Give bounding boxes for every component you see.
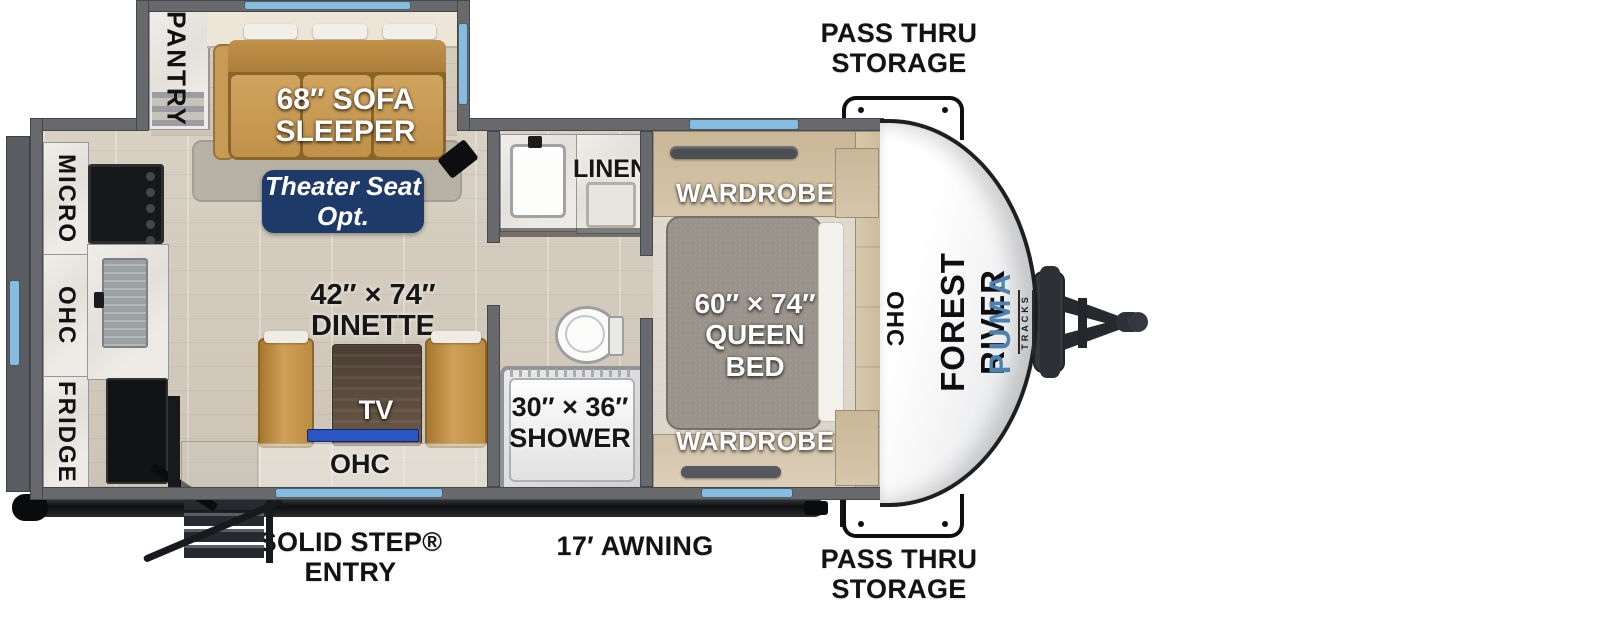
- bathroom-wall: [487, 131, 500, 243]
- bath-faucet: [528, 136, 542, 148]
- pass-thru-storage-label-bottom: PASS THRU STORAGE: [806, 544, 992, 604]
- window-accent: [245, 2, 410, 9]
- bathroom-wall: [487, 305, 500, 487]
- sofa-label-line2: SLEEPER: [258, 116, 433, 148]
- bench-pad: [431, 331, 481, 343]
- bathroom-wall: [640, 131, 653, 256]
- window-accent: [690, 120, 798, 129]
- tv-screen: [307, 429, 419, 442]
- toilet-seat: [565, 315, 605, 353]
- shower-word: SHOWER: [500, 423, 640, 454]
- pass-thru-line1: PASS THRU: [806, 18, 992, 48]
- tracks-wordmark: TRACKS: [1018, 290, 1034, 354]
- bed-word: QUEEN BED: [673, 319, 837, 382]
- screw-dot: [942, 107, 948, 113]
- bedroom-corner-cabinet: [835, 410, 879, 486]
- shower-door-track: [510, 369, 630, 377]
- awning-label: 17′ AWNING: [545, 531, 725, 561]
- bench-pad: [264, 331, 308, 343]
- bedroom-corner-cabinet: [835, 148, 879, 218]
- wardrobe-rod: [681, 466, 781, 478]
- sofa-sleeper-label: 68″ SOFA SLEEPER: [258, 84, 433, 148]
- bed-size: 60″ × 74″: [673, 288, 837, 319]
- step-rail: [266, 489, 273, 563]
- sofa-back: [228, 40, 446, 76]
- toilet-hinge: [608, 316, 624, 356]
- theater-seat-option-badge: Theater Seat Opt.: [262, 170, 424, 233]
- headrest: [244, 24, 297, 39]
- screw-dot: [942, 521, 948, 527]
- shower-size: 30″ × 36″: [500, 392, 640, 423]
- tv-label: TV: [332, 396, 420, 425]
- entry-steps: [146, 487, 286, 575]
- theater-line2: Opt.: [262, 202, 424, 231]
- linen-cabinet-door: [586, 182, 636, 228]
- kitchen-faucet: [94, 292, 104, 308]
- dinette-label: 42″ × 74″ DINETTE: [293, 280, 453, 342]
- wall: [457, 118, 884, 131]
- puma-wordmark: PUMA: [986, 270, 1016, 374]
- dinette-bench-right: [425, 338, 487, 448]
- pantry-label-wrap: PANTRY: [160, 12, 192, 126]
- bed-ohc-label: OHC: [880, 291, 908, 347]
- pass-thru-line2: STORAGE: [806, 574, 992, 604]
- bed-ohc-label-wrap: OHC: [880, 288, 908, 350]
- entry-door-frame: [168, 396, 180, 488]
- wardrobe-top-label: WARDROBE: [676, 180, 834, 208]
- sofa-headrests: [244, 24, 436, 39]
- vanity-shadow: [500, 228, 640, 237]
- window-accent: [459, 24, 467, 104]
- stabilizer-leg: [840, 497, 843, 527]
- headrest: [313, 24, 366, 39]
- queen-bed-label: 60″ × 74″ QUEEN BED: [673, 288, 837, 382]
- wardrobe-bottom-label: WARDROBE: [676, 428, 834, 456]
- wall: [30, 118, 43, 500]
- puma-tracks-logo: PUMA TRACKS: [983, 267, 1037, 377]
- screw-dot: [858, 107, 864, 113]
- fridge-label: FRIDGE: [52, 381, 80, 484]
- slide-wall: [136, 0, 149, 131]
- pass-thru-storage-label-top: PASS THRU STORAGE: [806, 18, 992, 78]
- awning-tube-end-cap: [804, 501, 828, 515]
- trailer-hitch: [1028, 262, 1148, 382]
- wardrobe-rod: [670, 146, 798, 159]
- entry-landing: [181, 441, 259, 489]
- sofa-label-line1: 68″ SOFA: [258, 84, 433, 116]
- theater-line1: Theater Seat: [262, 172, 424, 201]
- dinette-size: 42″ × 74″: [293, 280, 453, 311]
- burner-knobs: [146, 172, 155, 181]
- bath-sink: [510, 144, 566, 218]
- floorplan: PASS THRU STORAGE PASS THRU STORAGE SOLI…: [0, 0, 1600, 625]
- headrest: [383, 24, 436, 39]
- dinette-bench-left: [258, 338, 314, 448]
- ohc-label: OHC: [52, 286, 80, 345]
- cabinet-ohc: OHC: [43, 254, 89, 378]
- screw-dot: [858, 521, 864, 527]
- step-tread: [184, 545, 264, 558]
- kitchen-sink: [102, 258, 148, 348]
- awning-tube: [16, 498, 824, 517]
- window-accent: [276, 489, 442, 497]
- window-accent: [702, 489, 792, 497]
- cabinet-micro: MICRO: [43, 142, 89, 256]
- pantry-label: PANTRY: [161, 11, 192, 127]
- pass-thru-line1: PASS THRU: [806, 544, 992, 574]
- forest-river-logo: FOREST RIVER: [933, 197, 973, 447]
- micro-label: MICRO: [52, 154, 80, 244]
- shower-label: 30″ × 36″ SHOWER: [500, 392, 640, 454]
- dinette-ohc-label: OHC: [290, 450, 430, 479]
- bathroom-wall: [640, 318, 653, 487]
- pass-thru-line2: STORAGE: [806, 48, 992, 78]
- window-accent: [10, 281, 19, 365]
- wall: [30, 118, 149, 131]
- cabinet-fridge: FRIDGE: [43, 376, 89, 489]
